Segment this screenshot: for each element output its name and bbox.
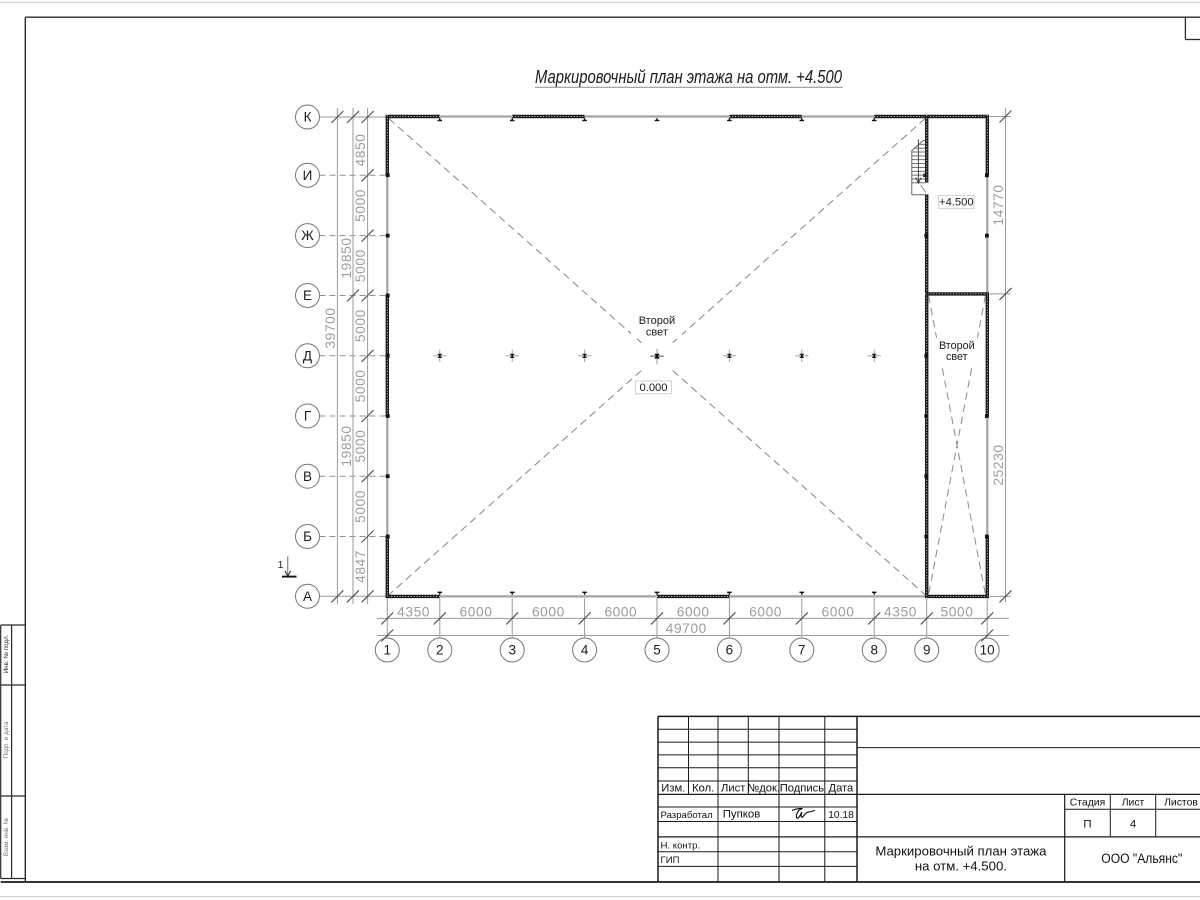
svg-text:5000: 5000 <box>353 369 368 402</box>
svg-text:5000: 5000 <box>353 309 368 342</box>
svg-text:Маркировочный план этажа: Маркировочный план этажа <box>875 843 1047 858</box>
svg-text:7: 7 <box>798 643 806 658</box>
svg-text:39700: 39700 <box>323 307 338 348</box>
svg-text:№док.: №док. <box>747 782 780 794</box>
svg-text:Подпись: Подпись <box>780 782 824 794</box>
svg-text:5: 5 <box>653 643 661 658</box>
svg-text:6000: 6000 <box>749 605 782 620</box>
svg-text:Пупков: Пупков <box>723 808 761 820</box>
svg-text:Е: Е <box>303 288 312 303</box>
svg-text:К: К <box>304 110 312 125</box>
svg-text:0.000: 0.000 <box>640 382 668 394</box>
svg-text:Ж: Ж <box>301 228 314 243</box>
svg-text:10.18: 10.18 <box>828 810 854 821</box>
svg-text:П: П <box>1083 819 1091 831</box>
svg-text:+4.500: +4.500 <box>939 197 974 209</box>
svg-text:свет: свет <box>946 351 968 363</box>
svg-text:Лист: Лист <box>1122 797 1145 808</box>
svg-text:Б: Б <box>303 529 312 544</box>
svg-text:4: 4 <box>1130 819 1136 831</box>
svg-text:Стадия: Стадия <box>1070 797 1105 808</box>
svg-text:4847: 4847 <box>353 550 368 583</box>
svg-text:1: 1 <box>278 559 284 571</box>
svg-text:4850: 4850 <box>353 134 368 167</box>
svg-text:1: 1 <box>384 643 392 658</box>
svg-text:5000: 5000 <box>353 249 368 282</box>
svg-text:ГИП: ГИП <box>661 855 680 866</box>
svg-text:25230: 25230 <box>991 444 1006 485</box>
svg-text:Разработал: Разработал <box>661 810 713 821</box>
svg-text:8: 8 <box>870 643 878 658</box>
svg-text:10: 10 <box>980 643 995 658</box>
svg-text:Изм.: Изм. <box>661 782 685 794</box>
svg-text:2: 2 <box>436 643 444 658</box>
svg-text:6000: 6000 <box>532 605 565 620</box>
svg-text:3: 3 <box>508 643 516 658</box>
svg-text:А: А <box>303 589 312 604</box>
svg-text:Д: Д <box>303 348 312 363</box>
svg-text:ООО "Альянс": ООО "Альянс" <box>1101 851 1182 866</box>
svg-text:Взам. инв. №: Взам. инв. № <box>3 817 10 856</box>
svg-text:Подп. и дата: Подп. и дата <box>3 721 10 758</box>
svg-text:Кол.: Кол. <box>692 782 714 794</box>
svg-text:6000: 6000 <box>460 605 493 620</box>
svg-text:6000: 6000 <box>822 605 855 620</box>
svg-text:19850: 19850 <box>339 425 354 466</box>
svg-text:6000: 6000 <box>677 605 710 620</box>
svg-text:4350: 4350 <box>884 605 917 620</box>
svg-text:6: 6 <box>726 643 734 658</box>
svg-text:5000: 5000 <box>353 430 368 463</box>
svg-text:5000: 5000 <box>941 605 974 620</box>
svg-text:Инв. № подл.: Инв. № подл. <box>3 634 10 673</box>
svg-text:Н. контр.: Н. контр. <box>661 841 701 852</box>
svg-text:Дата: Дата <box>829 782 855 794</box>
svg-text:И: И <box>303 168 313 183</box>
svg-text:4: 4 <box>581 643 589 658</box>
svg-text:Г: Г <box>304 409 312 424</box>
svg-text:свет: свет <box>646 326 668 338</box>
svg-text:4350: 4350 <box>397 605 430 620</box>
svg-text:Лист: Лист <box>721 782 745 794</box>
svg-text:5000: 5000 <box>353 189 368 222</box>
svg-text:на отм. +4.500.: на отм. +4.500. <box>915 859 1007 874</box>
svg-text:Листов: Листов <box>1164 797 1198 808</box>
svg-text:В: В <box>303 469 312 484</box>
svg-text:19850: 19850 <box>339 237 354 278</box>
svg-text:14770: 14770 <box>991 184 1006 225</box>
svg-text:9: 9 <box>923 643 931 658</box>
svg-text:6000: 6000 <box>604 605 637 620</box>
svg-text:5000: 5000 <box>353 490 368 523</box>
svg-text:49700: 49700 <box>666 621 707 636</box>
svg-text:Маркировочный план этажа на от: Маркировочный план этажа на отм. +4.500 <box>535 66 843 87</box>
